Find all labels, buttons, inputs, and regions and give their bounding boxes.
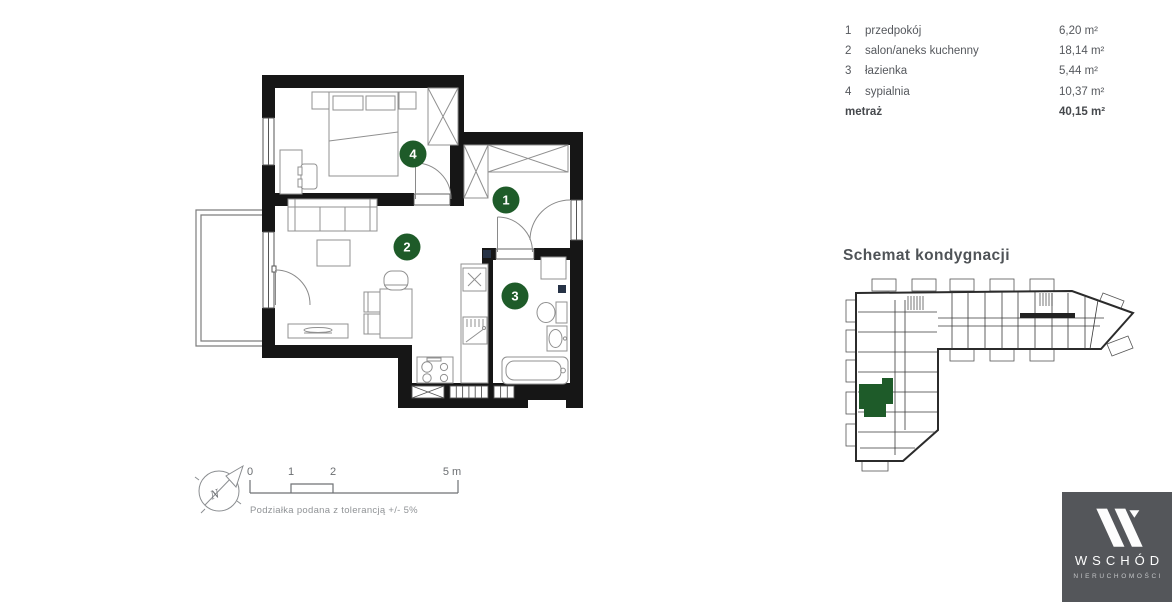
dining-chair-left bbox=[364, 314, 380, 334]
bedroom-door bbox=[414, 163, 451, 205]
compass-icon: N bbox=[195, 466, 243, 513]
wardrobe-hall-wide bbox=[488, 145, 568, 172]
scale-tick-5m: 5 m bbox=[443, 466, 461, 478]
legend-room-label: sypialnia bbox=[865, 86, 1059, 98]
legend-room-area: 5,44 m² bbox=[1059, 65, 1115, 77]
wardrobe-hall-corner bbox=[464, 145, 488, 198]
legend-room-area: 18,14 m² bbox=[1059, 45, 1115, 57]
scale-tick-1: 1 bbox=[288, 466, 294, 478]
floor-schematic bbox=[846, 279, 1133, 471]
living-furniture bbox=[288, 199, 412, 338]
logo-subtitle: NIERUCHOMOŚCI bbox=[1062, 573, 1172, 580]
bathtub bbox=[502, 357, 568, 384]
scale-bar: 0 1 2 5 m bbox=[247, 466, 461, 493]
corridor-core bbox=[1020, 313, 1075, 318]
bathroom-fixtures bbox=[483, 250, 568, 384]
legend-total-label: metraż bbox=[845, 106, 1059, 118]
legend-room-label: przedpokój bbox=[865, 25, 1059, 37]
legend-row: 1 przedpokój 6,20 m² bbox=[845, 21, 1115, 41]
room-marker-salon: 2 bbox=[394, 234, 421, 261]
pillow bbox=[366, 96, 395, 110]
tv-stand bbox=[288, 324, 348, 338]
kitchen bbox=[417, 264, 488, 383]
balcony-door-swing bbox=[276, 270, 311, 305]
hallway-furniture bbox=[464, 145, 568, 198]
legend-room-number: 3 bbox=[845, 65, 865, 77]
legend-room-label: salon/aneks kuchenny bbox=[865, 45, 1059, 57]
legend-room-area: 6,20 m² bbox=[1059, 25, 1115, 37]
shaft-marker bbox=[558, 285, 566, 293]
dining-table bbox=[380, 289, 412, 338]
balcony-door-window bbox=[263, 232, 276, 308]
room-marker-number: 2 bbox=[403, 240, 410, 255]
legend-room-number: 1 bbox=[845, 25, 865, 37]
legend-room-number: 2 bbox=[845, 45, 865, 57]
sofa bbox=[288, 199, 377, 231]
nightstand-right bbox=[399, 92, 416, 109]
legend-row: 4 sypialnia 10,37 m² bbox=[845, 82, 1115, 102]
room-marker-lazienka: 3 bbox=[502, 283, 529, 310]
dishwasher bbox=[463, 317, 487, 344]
bathroom-cabinet bbox=[541, 257, 566, 279]
building-outline bbox=[856, 291, 1133, 461]
room-marker-number: 1 bbox=[502, 193, 509, 208]
legend-total-area: 40,15 m² bbox=[1059, 106, 1115, 118]
washbasin bbox=[547, 326, 567, 351]
kitchen-sink bbox=[463, 268, 486, 291]
pillow bbox=[333, 96, 363, 110]
entrance-door bbox=[530, 200, 582, 240]
balcony bbox=[196, 210, 262, 346]
dining-chair-top bbox=[384, 271, 408, 290]
logo-brand-name: WSCHÓD bbox=[1062, 553, 1172, 568]
room-legend: 1 przedpokój 6,20 m² 2 salon/aneks kuche… bbox=[845, 21, 1115, 122]
toilet bbox=[537, 302, 567, 323]
legend-row: 2 salon/aneks kuchenny 18,14 m² bbox=[845, 41, 1115, 61]
legend-row: 3 łazienka 5,44 m² bbox=[845, 61, 1115, 81]
wardrobe-bedroom bbox=[428, 88, 458, 145]
nightstand-left bbox=[312, 92, 329, 109]
room-marker-przedpokoj: 1 bbox=[493, 187, 520, 214]
brand-logo: WSCHÓD NIERUCHOMOŚCI bbox=[1062, 492, 1172, 602]
scale-tick-0: 0 bbox=[247, 466, 253, 478]
floorplan-page: 1 2 3 4 bbox=[0, 0, 1172, 602]
bedroom-window bbox=[263, 118, 274, 165]
shaft-marker bbox=[483, 250, 491, 258]
dining-chair-left bbox=[364, 292, 380, 312]
wall-vents bbox=[412, 386, 514, 398]
legend-total-row: metraż 40,15 m² bbox=[845, 102, 1115, 122]
legend-room-number: 4 bbox=[845, 86, 865, 98]
room-marker-sypialnia: 4 bbox=[400, 141, 427, 168]
scale-tolerance-note: Podziałka podana z tolerancją +/- 5% bbox=[250, 505, 418, 516]
room-marker-number: 3 bbox=[511, 289, 518, 304]
coffee-table bbox=[317, 240, 350, 266]
bathroom-door bbox=[496, 217, 534, 259]
schematic-title: Schemat kondygnacji bbox=[843, 247, 1010, 265]
apartment-plan: 1 2 3 4 bbox=[196, 75, 583, 408]
room-marker-number: 4 bbox=[409, 147, 417, 162]
bedroom-furniture bbox=[280, 88, 458, 194]
desk-chair bbox=[298, 164, 317, 189]
legend-room-area: 10,37 m² bbox=[1059, 86, 1115, 98]
stove bbox=[417, 357, 453, 383]
scale-tick-2: 2 bbox=[330, 466, 336, 478]
logo-w-mark bbox=[1062, 502, 1172, 550]
legend-room-label: łazienka bbox=[865, 65, 1059, 77]
